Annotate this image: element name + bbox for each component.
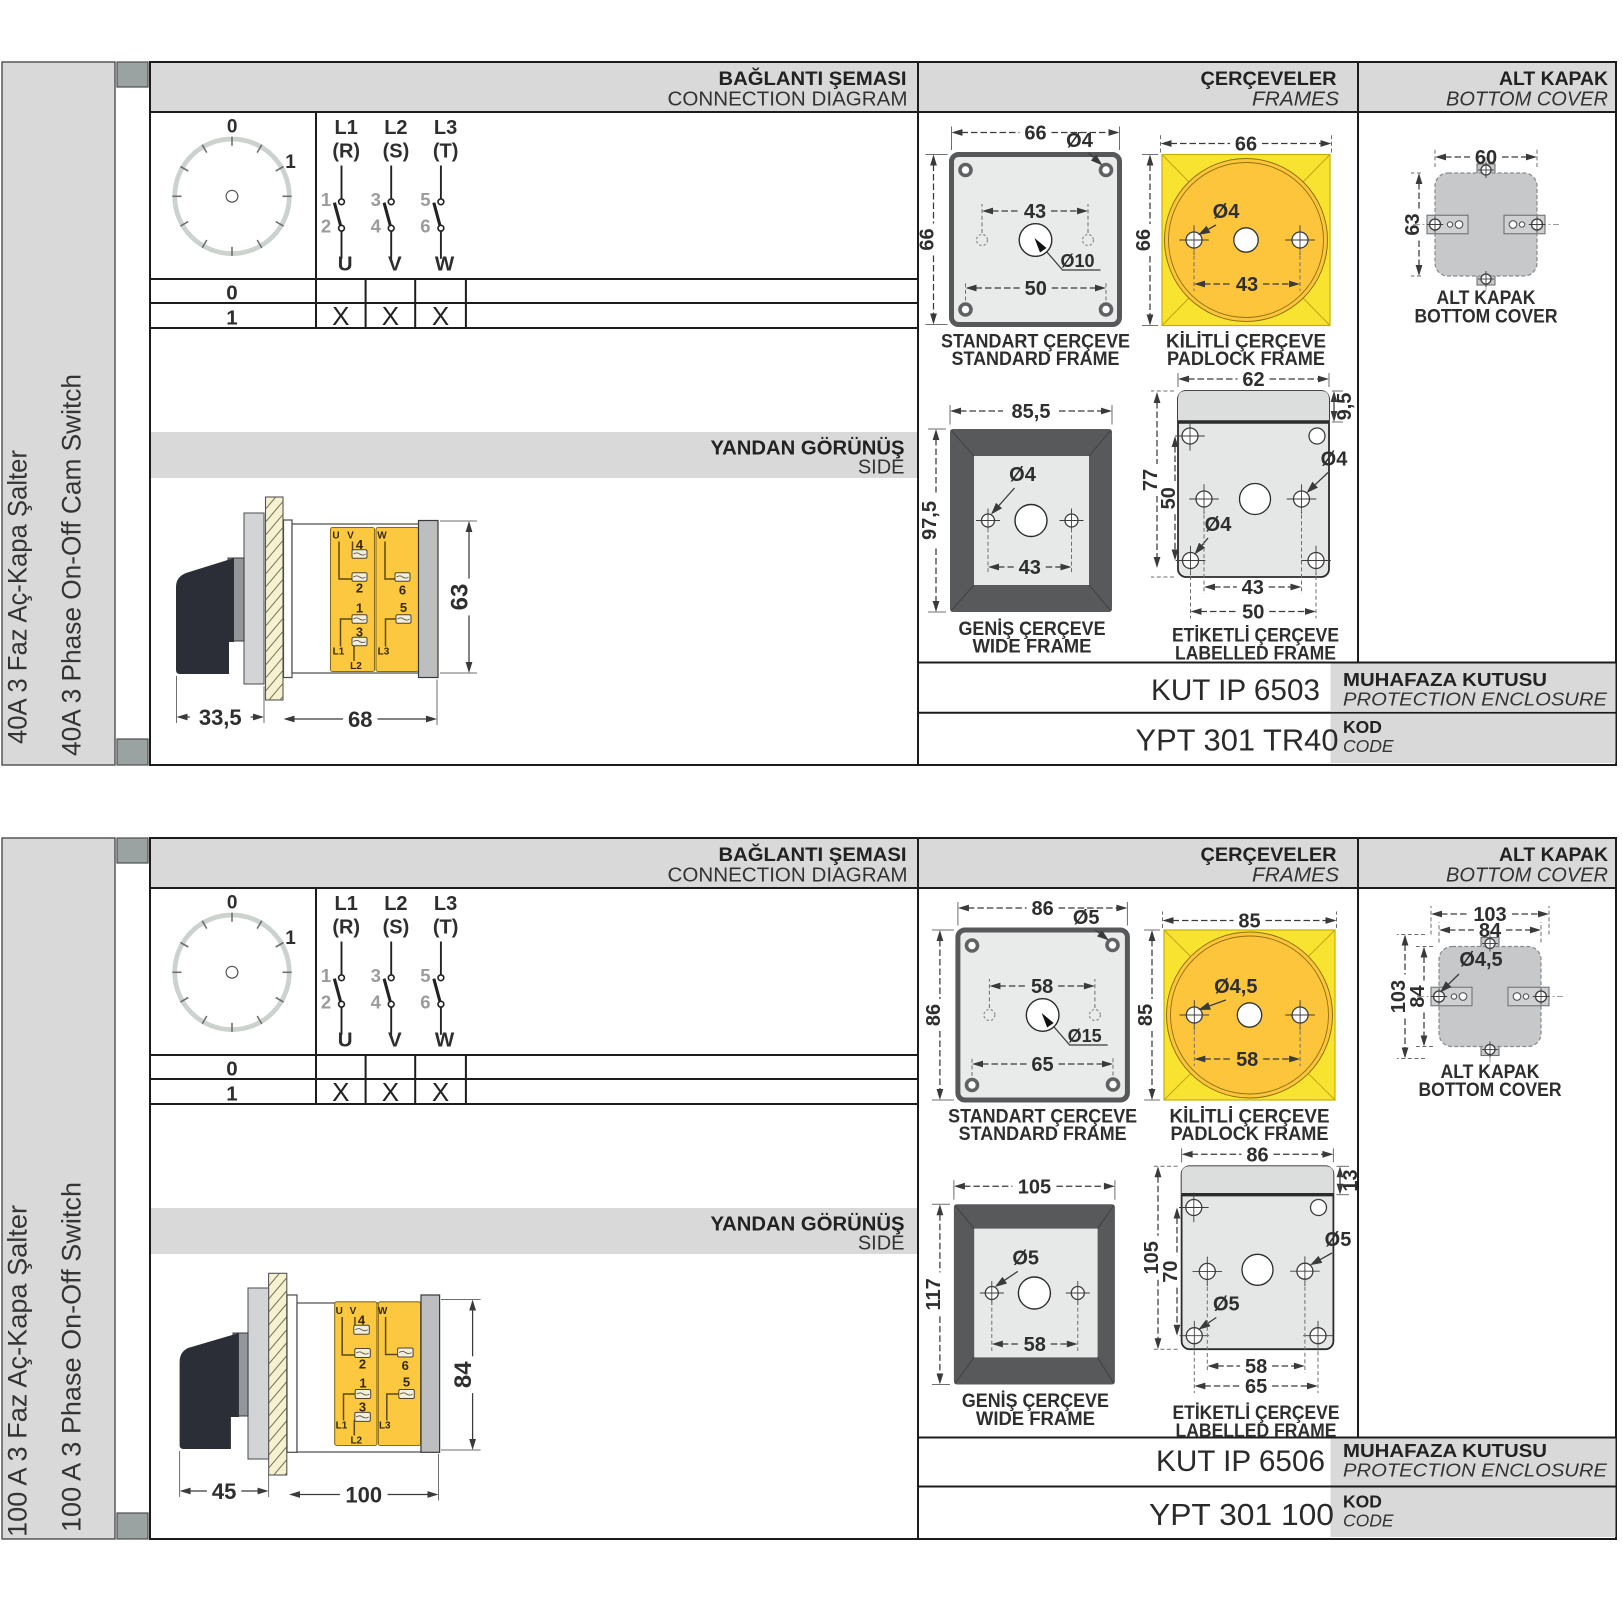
- svg-text:5: 5: [420, 965, 430, 986]
- svg-text:Ø4,5: Ø4,5: [1459, 949, 1502, 971]
- svg-text:5: 5: [420, 189, 430, 210]
- svg-text:Ø5: Ø5: [1325, 1229, 1352, 1251]
- svg-text:65: 65: [1245, 1376, 1267, 1398]
- svg-text:2: 2: [359, 1357, 366, 1372]
- svg-text:CONNECTION DIAGRAM: CONNECTION DIAGRAM: [668, 865, 908, 887]
- svg-text:L2: L2: [384, 117, 407, 139]
- svg-text:ALT KAPAK: ALT KAPAK: [1499, 68, 1608, 90]
- svg-text:85,5: 85,5: [1012, 401, 1051, 423]
- svg-text:117: 117: [923, 1278, 945, 1310]
- svg-text:PADLOCK FRAME: PADLOCK FRAME: [1167, 348, 1325, 370]
- svg-text:U: U: [338, 253, 353, 276]
- svg-text:68: 68: [348, 707, 372, 732]
- svg-text:KUT IP 6503: KUT IP 6503: [1151, 674, 1320, 707]
- svg-text:58: 58: [1245, 1356, 1267, 1378]
- svg-text:(S): (S): [383, 917, 410, 939]
- svg-text:MUHAFAZA KUTUSU: MUHAFAZA KUTUSU: [1343, 670, 1547, 690]
- svg-text:(S): (S): [383, 141, 410, 163]
- svg-text:63: 63: [447, 584, 474, 611]
- svg-text:1: 1: [285, 928, 296, 949]
- svg-text:62: 62: [1242, 369, 1264, 391]
- svg-text:W: W: [377, 531, 387, 542]
- svg-text:105: 105: [1018, 1176, 1051, 1198]
- svg-text:40A 3 Faz Aç-Kapa Şalter: 40A 3 Faz Aç-Kapa Şalter: [3, 450, 33, 744]
- svg-text:50: 50: [1242, 602, 1264, 624]
- svg-text:2: 2: [321, 215, 331, 236]
- svg-text:5: 5: [403, 1375, 410, 1390]
- svg-text:L3: L3: [434, 117, 457, 139]
- svg-text:40A 3 Phase On-Off Cam Switch: 40A 3 Phase On-Off Cam Switch: [57, 374, 87, 756]
- svg-text:BAĞLANTI ŞEMASI: BAĞLANTI ŞEMASI: [719, 843, 907, 866]
- svg-text:50: 50: [1025, 278, 1047, 300]
- svg-text:43: 43: [1236, 274, 1258, 296]
- svg-text:FRAMES: FRAMES: [1252, 89, 1340, 111]
- svg-text:0: 0: [226, 1058, 237, 1081]
- svg-text:L3: L3: [379, 1421, 391, 1432]
- svg-text:50: 50: [1158, 487, 1180, 509]
- svg-text:60: 60: [1475, 147, 1497, 169]
- svg-text:2: 2: [321, 991, 331, 1012]
- svg-text:U: U: [332, 531, 339, 542]
- svg-text:43: 43: [1024, 201, 1046, 223]
- svg-text:(T): (T): [433, 917, 459, 939]
- svg-text:2: 2: [356, 581, 363, 596]
- svg-text:84: 84: [1479, 920, 1502, 942]
- svg-text:STANDARD FRAME: STANDARD FRAME: [952, 348, 1120, 370]
- svg-text:W: W: [435, 253, 455, 276]
- svg-text:Ø4: Ø4: [1213, 201, 1241, 223]
- svg-text:ÇERÇEVELER: ÇERÇEVELER: [1201, 844, 1337, 866]
- svg-text:Ø5: Ø5: [1012, 1247, 1039, 1269]
- svg-text:ALT KAPAK: ALT KAPAK: [1499, 844, 1608, 866]
- svg-text:V: V: [388, 1029, 402, 1052]
- svg-text:45: 45: [212, 1479, 236, 1504]
- svg-text:L3: L3: [378, 647, 390, 658]
- svg-text:KOD: KOD: [1343, 717, 1382, 737]
- svg-text:3: 3: [356, 625, 363, 640]
- svg-text:ÇERÇEVELER: ÇERÇEVELER: [1201, 68, 1337, 90]
- svg-text:1: 1: [359, 1376, 366, 1391]
- svg-text:CODE: CODE: [1343, 736, 1394, 756]
- svg-text:FRAMES: FRAMES: [1252, 865, 1340, 887]
- svg-text:SIDE: SIDE: [858, 457, 905, 479]
- svg-text:X: X: [332, 1077, 349, 1107]
- svg-text:L2: L2: [384, 893, 407, 915]
- svg-text:Ø4: Ø4: [1066, 130, 1094, 152]
- svg-text:Ø5: Ø5: [1073, 907, 1100, 929]
- svg-text:6: 6: [402, 1358, 409, 1373]
- svg-text:1: 1: [356, 601, 363, 616]
- svg-text:Ø4: Ø4: [1321, 449, 1349, 471]
- svg-text:X: X: [382, 1077, 399, 1107]
- svg-text:4: 4: [371, 215, 382, 236]
- svg-text:66: 66: [1235, 134, 1257, 156]
- svg-text:LABELLED FRAME: LABELLED FRAME: [1175, 643, 1336, 665]
- svg-text:(T): (T): [433, 141, 459, 163]
- svg-text:6: 6: [420, 215, 430, 236]
- svg-text:58: 58: [1236, 1049, 1258, 1071]
- svg-text:W: W: [378, 1306, 388, 1317]
- svg-text:STANDARD FRAME: STANDARD FRAME: [959, 1123, 1127, 1145]
- svg-text:1: 1: [226, 1082, 237, 1105]
- svg-text:L3: L3: [434, 893, 457, 915]
- svg-text:L2: L2: [350, 661, 362, 672]
- svg-text:63: 63: [1402, 213, 1424, 235]
- svg-text:Ø4: Ø4: [1205, 514, 1233, 536]
- svg-text:U: U: [336, 1306, 343, 1317]
- svg-text:MUHAFAZA KUTUSU: MUHAFAZA KUTUSU: [1343, 1441, 1547, 1461]
- svg-text:13: 13: [1340, 1169, 1362, 1191]
- svg-text:X: X: [432, 301, 449, 331]
- svg-text:Ø4: Ø4: [1009, 464, 1037, 486]
- svg-text:WIDE FRAME: WIDE FRAME: [976, 1408, 1095, 1430]
- svg-text:86: 86: [1246, 1145, 1268, 1167]
- svg-text:1: 1: [226, 306, 237, 329]
- svg-text:86: 86: [923, 1004, 945, 1026]
- svg-text:SIDE: SIDE: [858, 1233, 905, 1255]
- svg-text:6: 6: [399, 583, 406, 598]
- svg-text:X: X: [382, 301, 399, 331]
- svg-text:100: 100: [345, 1482, 382, 1507]
- svg-text:(R): (R): [332, 917, 360, 939]
- svg-text:V: V: [350, 1306, 357, 1317]
- svg-text:Ø4,5: Ø4,5: [1214, 976, 1257, 998]
- svg-text:L2: L2: [350, 1436, 362, 1447]
- svg-text:YPT 301 100: YPT 301 100: [1149, 1498, 1334, 1532]
- svg-text:Ø15: Ø15: [1068, 1026, 1102, 1046]
- svg-text:66: 66: [917, 228, 939, 250]
- svg-text:PROTECTION ENCLOSURE: PROTECTION ENCLOSURE: [1343, 689, 1608, 710]
- svg-text:6: 6: [420, 991, 430, 1012]
- svg-text:CONNECTION DIAGRAM: CONNECTION DIAGRAM: [668, 89, 908, 111]
- svg-text:X: X: [332, 301, 349, 331]
- svg-text:CODE: CODE: [1343, 1511, 1394, 1531]
- svg-text:43: 43: [1242, 577, 1264, 599]
- svg-text:V: V: [388, 253, 402, 276]
- svg-text:100 A 3 Faz Aç-Kapa Şalter: 100 A 3 Faz Aç-Kapa Şalter: [3, 1205, 33, 1537]
- svg-text:85: 85: [1238, 911, 1260, 933]
- svg-text:3: 3: [371, 189, 381, 210]
- svg-text:97,5: 97,5: [919, 501, 941, 540]
- svg-text:43: 43: [1019, 557, 1041, 579]
- svg-text:70: 70: [1160, 1260, 1182, 1282]
- svg-text:84: 84: [1407, 985, 1429, 1008]
- svg-text:1: 1: [321, 965, 331, 986]
- svg-text:KUT IP 6506: KUT IP 6506: [1156, 1445, 1325, 1478]
- svg-text:X: X: [432, 1077, 449, 1107]
- svg-text:4: 4: [358, 1313, 366, 1328]
- svg-text:84: 84: [450, 1361, 477, 1388]
- svg-text:3: 3: [371, 965, 381, 986]
- svg-text:BOTTOM COVER: BOTTOM COVER: [1419, 1079, 1562, 1101]
- svg-text:KOD: KOD: [1343, 1492, 1382, 1512]
- svg-text:3: 3: [359, 1400, 366, 1415]
- svg-text:Ø5: Ø5: [1213, 1294, 1240, 1316]
- svg-text:5: 5: [400, 600, 407, 615]
- svg-text:BAĞLANTI ŞEMASI: BAĞLANTI ŞEMASI: [719, 67, 907, 90]
- svg-text:YPT 301 TR40: YPT 301 TR40: [1136, 724, 1339, 758]
- svg-text:PADLOCK FRAME: PADLOCK FRAME: [1171, 1123, 1329, 1145]
- svg-text:85: 85: [1135, 1004, 1157, 1026]
- svg-text:4: 4: [371, 991, 382, 1012]
- svg-text:BOTTOM COVER: BOTTOM COVER: [1415, 306, 1558, 328]
- svg-text:65: 65: [1031, 1054, 1053, 1076]
- svg-text:58: 58: [1024, 1334, 1046, 1356]
- svg-text:L1: L1: [335, 117, 358, 139]
- svg-text:L1: L1: [333, 647, 345, 658]
- svg-text:100 A 3 Phase On-Off Switch: 100 A 3 Phase On-Off Switch: [57, 1182, 87, 1532]
- svg-text:33,5: 33,5: [199, 705, 242, 730]
- svg-text:4: 4: [356, 537, 364, 552]
- svg-text:Ø10: Ø10: [1060, 251, 1094, 271]
- svg-text:66: 66: [1024, 123, 1046, 145]
- svg-text:PROTECTION ENCLOSURE: PROTECTION ENCLOSURE: [1343, 1460, 1608, 1481]
- svg-text:WIDE FRAME: WIDE FRAME: [973, 636, 1092, 658]
- svg-text:BOTTOM COVER: BOTTOM COVER: [1446, 89, 1608, 111]
- svg-text:W: W: [435, 1029, 455, 1052]
- svg-text:V: V: [347, 531, 354, 542]
- svg-text:L1: L1: [335, 893, 358, 915]
- svg-text:BOTTOM COVER: BOTTOM COVER: [1446, 865, 1608, 887]
- svg-text:LABELLED FRAME: LABELLED FRAME: [1176, 1420, 1337, 1442]
- svg-text:(R): (R): [332, 141, 360, 163]
- svg-text:0: 0: [227, 117, 238, 138]
- svg-text:L1: L1: [336, 1421, 348, 1432]
- svg-text:66: 66: [1133, 229, 1155, 251]
- svg-text:86: 86: [1032, 898, 1054, 920]
- svg-text:U: U: [338, 1029, 353, 1052]
- svg-text:0: 0: [227, 893, 238, 914]
- svg-text:58: 58: [1031, 976, 1053, 998]
- svg-text:1: 1: [321, 189, 331, 210]
- svg-text:1: 1: [285, 152, 296, 173]
- svg-text:0: 0: [226, 282, 237, 305]
- svg-text:9,5: 9,5: [1334, 393, 1356, 421]
